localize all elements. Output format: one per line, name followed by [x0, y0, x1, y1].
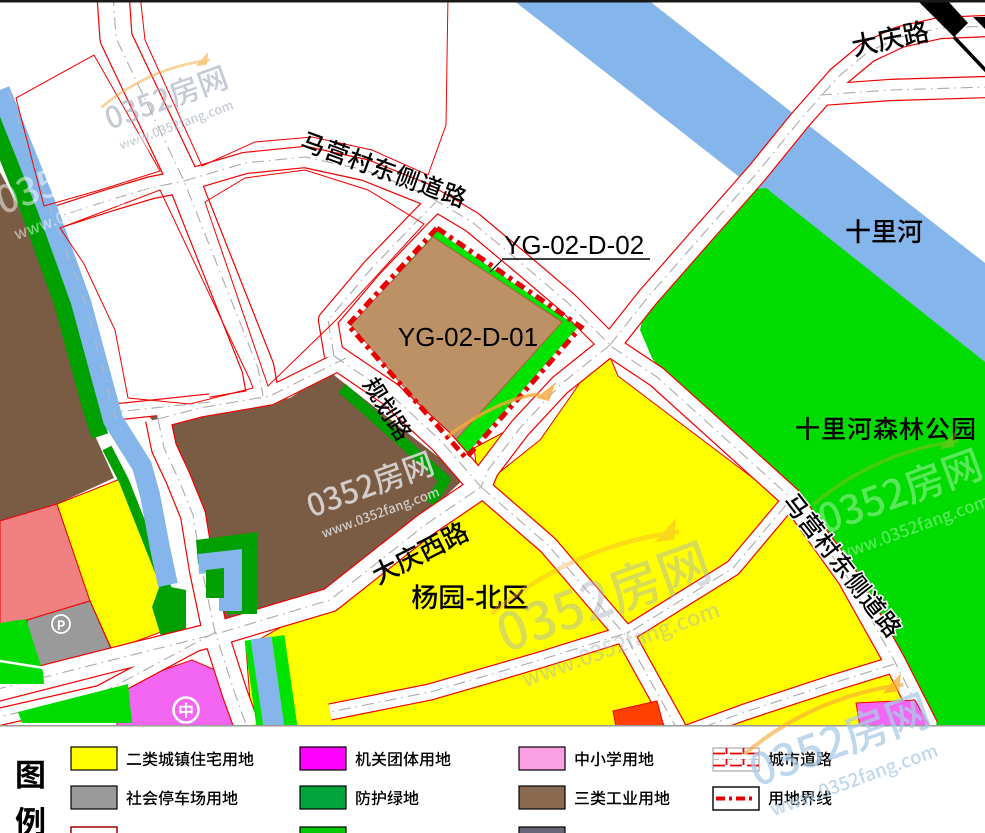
svg-text:YG-02-D-02: YG-02-D-02 [504, 230, 644, 260]
svg-text:YG-02-D-01: YG-02-D-01 [398, 322, 538, 352]
